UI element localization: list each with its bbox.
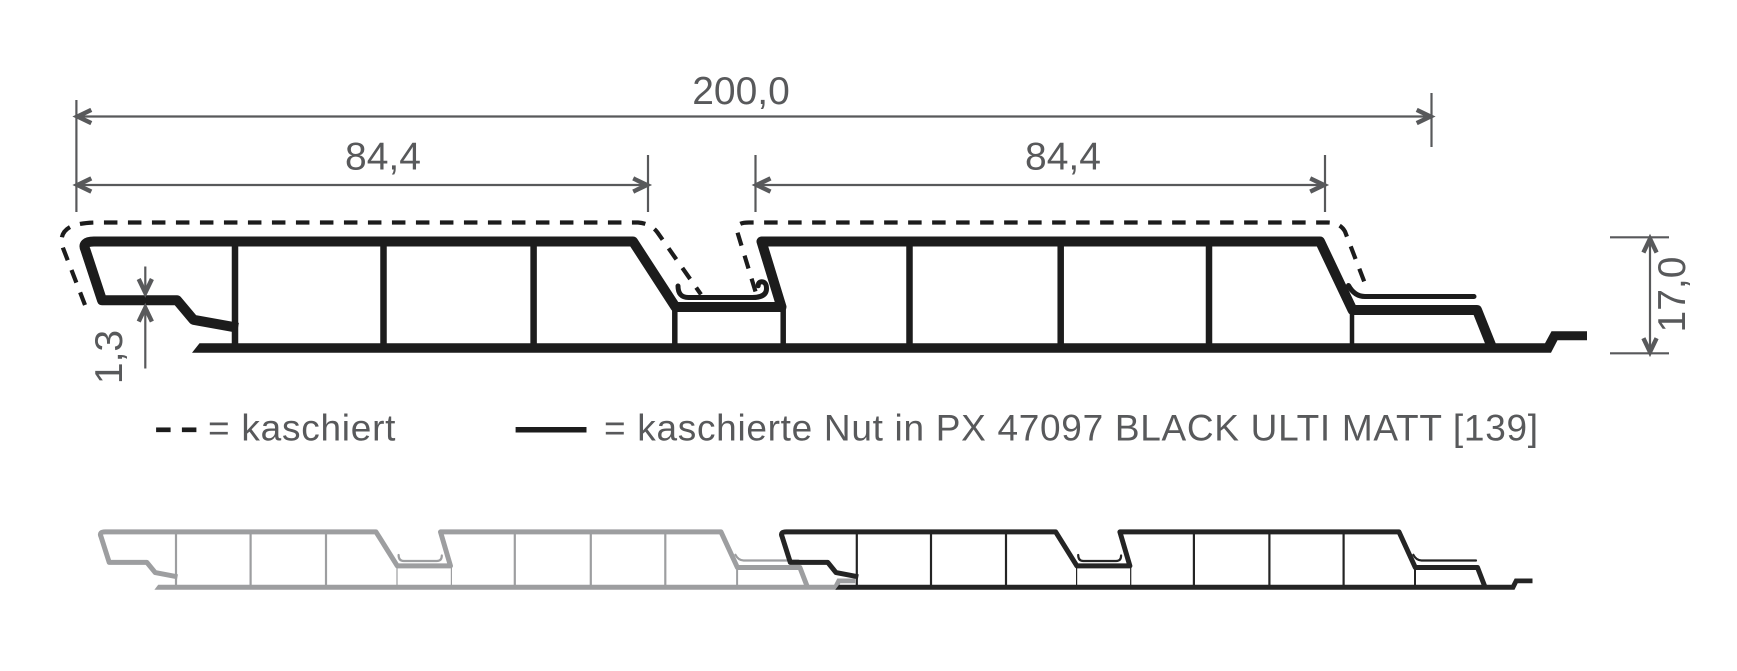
svg-text:= kaschiert: = kaschiert — [208, 408, 396, 449]
svg-text:84,4: 84,4 — [345, 136, 421, 179]
svg-text:17,0: 17,0 — [1651, 257, 1694, 333]
svg-text:200,0: 200,0 — [692, 70, 790, 113]
svg-text:84,4: 84,4 — [1025, 136, 1101, 179]
svg-text:= kaschierte Nut in PX 47097 B: = kaschierte Nut in PX 47097 BLACK ULTI … — [604, 408, 1539, 449]
svg-text:1,3: 1,3 — [88, 330, 131, 384]
